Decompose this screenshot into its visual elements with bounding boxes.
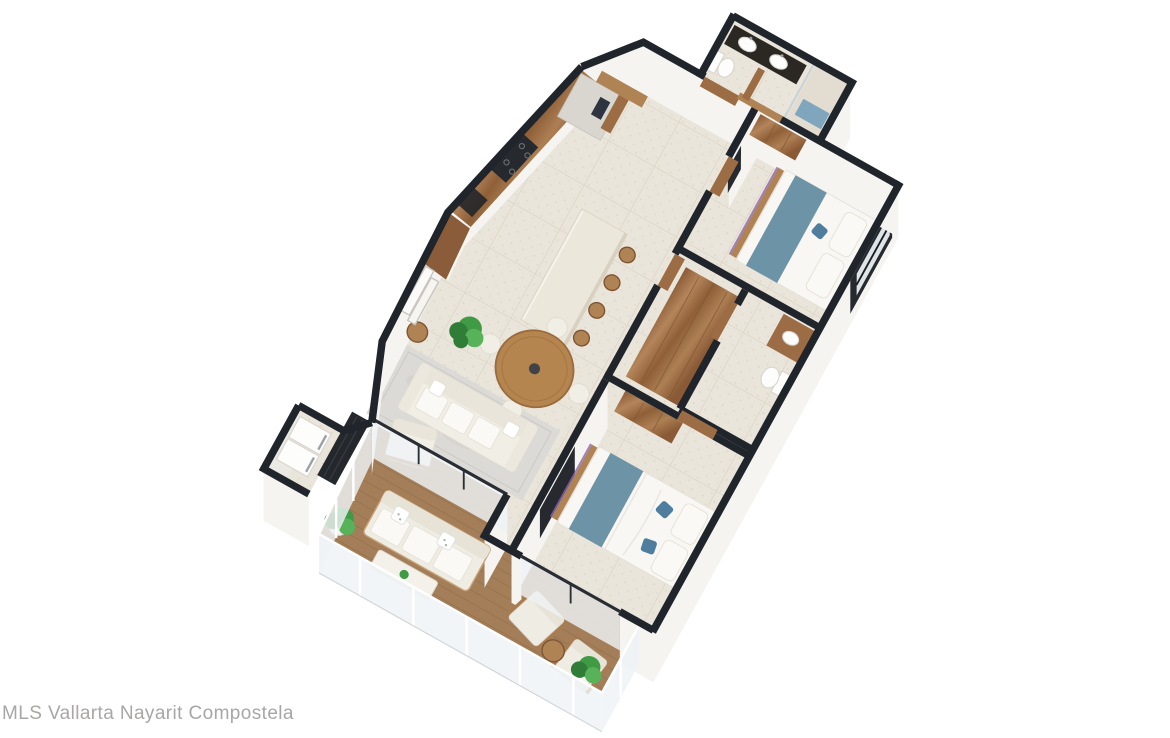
floorplan-image: MLS Vallarta Nayarit Compostela [0, 0, 1170, 738]
apartment-plan [229, 0, 955, 738]
floorplan-render [0, 0, 1170, 738]
watermark: MLS Vallarta Nayarit Compostela [2, 703, 294, 725]
